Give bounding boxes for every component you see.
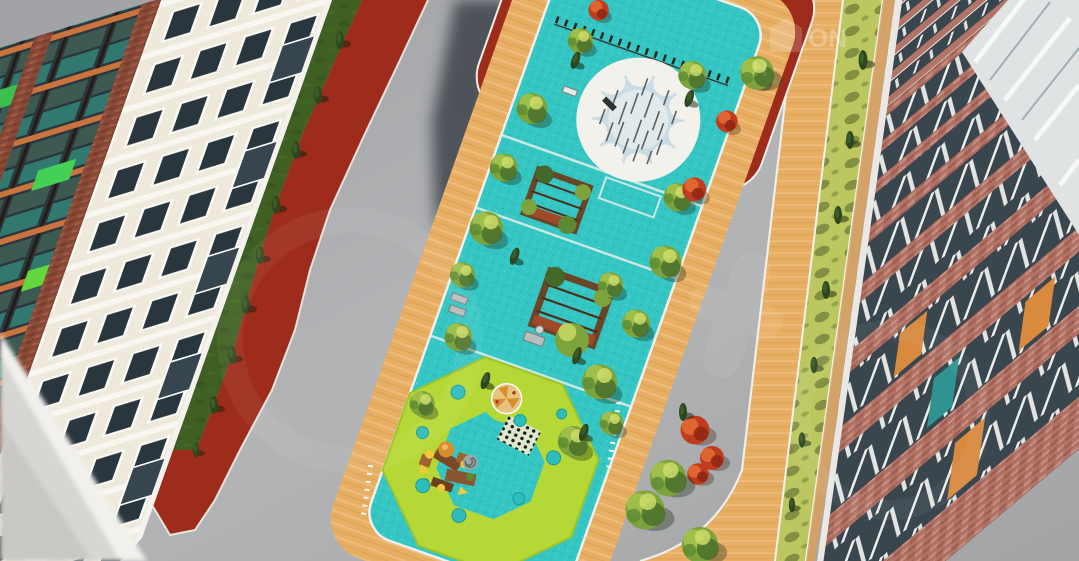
watermark-text: ON: [808, 23, 847, 53]
courtyard-render: ON H: [0, 0, 1079, 561]
render-image: ON H: [0, 0, 1079, 561]
watermark-partial-letter: H: [752, 56, 768, 81]
